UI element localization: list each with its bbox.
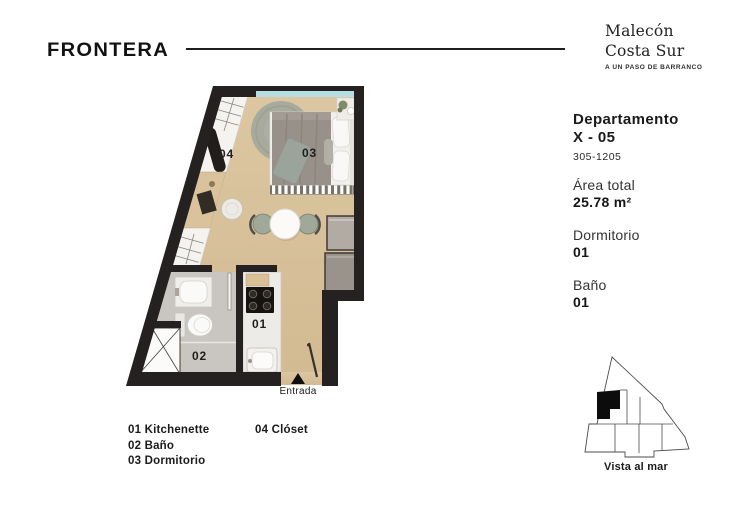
legend-item-bano: 02 Baño xyxy=(128,439,209,455)
legend-item-kitchenette: 01 Kitchenette xyxy=(128,423,209,439)
window xyxy=(256,91,354,97)
frontera-logo: FRONTERA xyxy=(47,40,169,62)
project-title-block: Malecón Costa Sur A UN PASO DE BARRANCO xyxy=(605,25,703,71)
chair xyxy=(298,214,318,234)
highlighted-unit xyxy=(597,390,620,419)
bathrooms-value: 01 xyxy=(573,294,723,310)
slatted-bench xyxy=(270,185,354,195)
floorplan-drawing: 04 03 01 02 Entrada xyxy=(110,78,380,404)
area-value: 25.78 m² xyxy=(573,194,723,210)
plan-label-closet: 04 xyxy=(219,147,234,161)
unit-title-line2: X - 05 xyxy=(573,129,723,147)
stool xyxy=(222,199,243,220)
bedrooms-label: Dormitorio xyxy=(573,227,723,243)
bathrooms-label: Baño xyxy=(573,277,723,293)
entrance-label: Entrada xyxy=(279,386,316,397)
nightstand xyxy=(337,98,356,120)
unit-range: 305-1205 xyxy=(573,151,723,163)
bathroom-door xyxy=(228,273,231,310)
plan-label-kitchenette: 01 xyxy=(252,317,267,331)
project-name-line1: Malecón xyxy=(605,25,703,39)
building-locator-icon xyxy=(577,352,695,458)
plan-legend: 01 Kitchenette 02 Baño 03 Dormitorio xyxy=(128,423,209,470)
table xyxy=(270,209,300,239)
unit-title-line1: Departamento xyxy=(573,111,723,129)
project-tagline: A UN PASO DE BARRANCO xyxy=(605,64,703,71)
header-divider-line xyxy=(186,48,565,50)
pillow xyxy=(332,151,350,182)
area-label: Área total xyxy=(573,177,723,193)
unit-info-panel: Departamento X - 05 305-1205 Área total … xyxy=(573,111,723,310)
plan-label-dormitorio: 03 xyxy=(302,146,317,160)
pillow xyxy=(332,116,350,147)
appliances xyxy=(325,216,356,291)
plan-label-bano: 02 xyxy=(192,349,207,363)
legend-item-closet: 04 Clóset xyxy=(255,423,308,439)
cushion xyxy=(324,139,333,165)
bedrooms-value: 01 xyxy=(573,244,723,260)
toilet xyxy=(188,314,213,336)
project-name-line2: Costa Sur xyxy=(605,45,703,59)
locator-caption: Vista al mar xyxy=(577,461,695,473)
legend-item-dormitorio: 03 Dormitorio xyxy=(128,454,209,470)
brochure-page: FRONTERA Malecón Costa Sur A UN PASO DE … xyxy=(0,0,730,515)
